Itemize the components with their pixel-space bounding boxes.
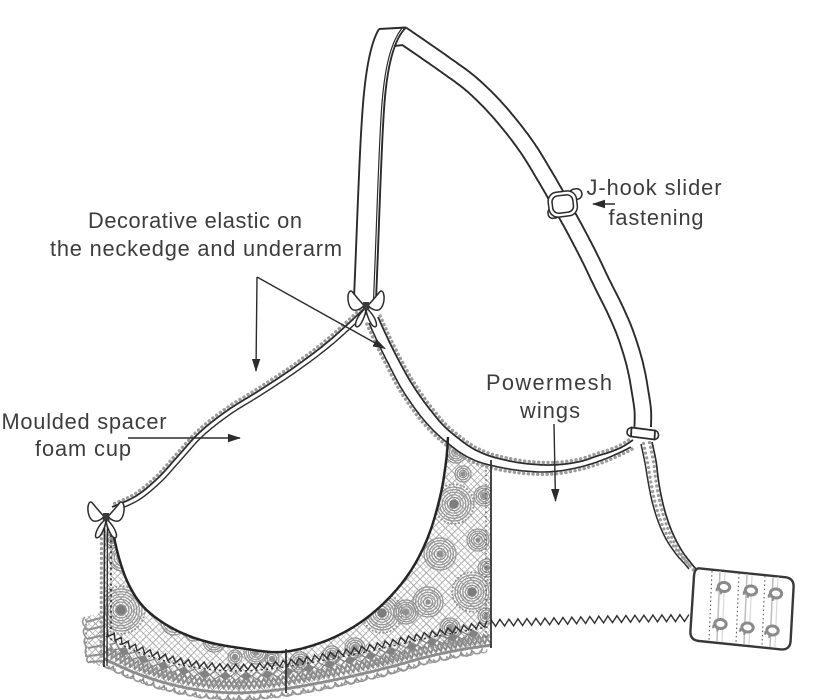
svg-text:J-hook slider: J-hook slider [587, 175, 722, 200]
svg-text:fastening: fastening [609, 205, 704, 230]
svg-text:Decorative elastic on: Decorative elastic on [88, 208, 302, 233]
svg-text:the neckedge and underarm: the neckedge and underarm [50, 236, 342, 261]
svg-text:wings: wings [519, 398, 580, 423]
svg-text:foam cup: foam cup [35, 436, 131, 461]
svg-text:Moulded spacer: Moulded spacer [2, 409, 167, 434]
svg-text:Powermesh: Powermesh [486, 370, 612, 395]
